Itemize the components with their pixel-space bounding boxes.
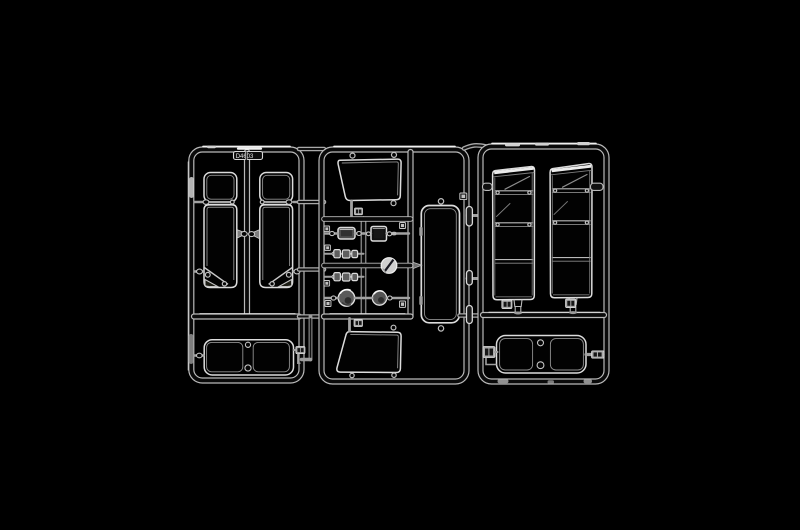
svg-text:D4603: D4603 [236,154,254,160]
